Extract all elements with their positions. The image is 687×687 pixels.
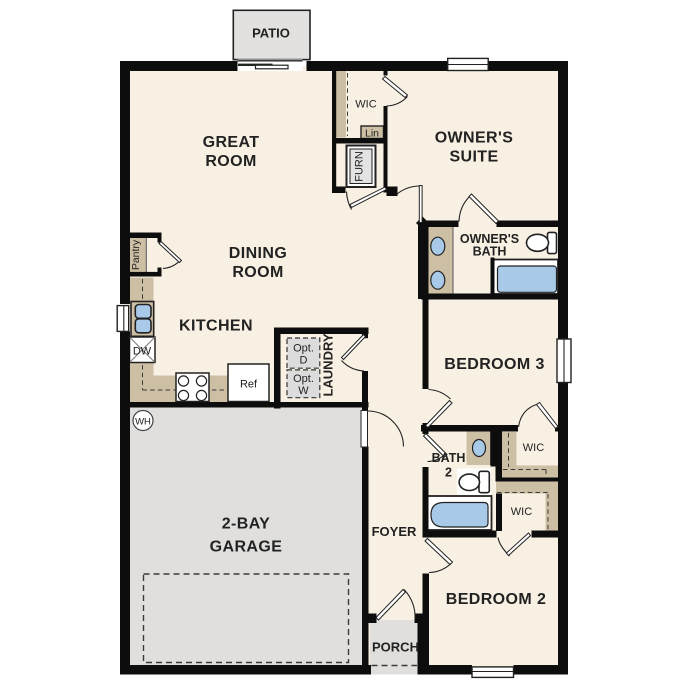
svg-text:2-BAY: 2-BAY	[222, 516, 271, 533]
svg-text:LAUNDRY: LAUNDRY	[321, 333, 336, 396]
svg-text:BEDROOM 3: BEDROOM 3	[444, 356, 545, 373]
svg-text:Lin: Lin	[365, 128, 379, 140]
svg-text:BATH: BATH	[432, 451, 466, 465]
svg-text:OWNER'S: OWNER'S	[435, 130, 514, 147]
svg-text:Opt.: Opt.	[293, 342, 314, 354]
svg-text:2: 2	[445, 466, 452, 480]
svg-text:ROOM: ROOM	[232, 264, 283, 281]
svg-text:DINING: DINING	[229, 245, 287, 262]
svg-text:GREAT: GREAT	[203, 134, 260, 151]
svg-text:GARAGE: GARAGE	[210, 539, 283, 556]
svg-text:PORCH: PORCH	[372, 640, 419, 655]
svg-text:Pantry: Pantry	[130, 239, 142, 270]
svg-text:BEDROOM 2: BEDROOM 2	[446, 591, 547, 608]
svg-text:WIC: WIC	[355, 99, 376, 111]
svg-text:SUITE: SUITE	[449, 149, 498, 166]
svg-text:Opt.: Opt.	[293, 373, 314, 385]
svg-text:D: D	[300, 355, 308, 367]
svg-text:FURN: FURN	[354, 151, 366, 182]
svg-text:ROOM: ROOM	[205, 153, 256, 170]
svg-text:FOYER: FOYER	[372, 524, 417, 539]
svg-text:PATIO: PATIO	[252, 26, 290, 41]
svg-text:DW: DW	[133, 346, 152, 358]
svg-text:W: W	[298, 385, 309, 397]
svg-text:WIC: WIC	[511, 506, 532, 518]
svg-text:BATH: BATH	[473, 245, 507, 259]
svg-text:WIC: WIC	[523, 442, 544, 454]
svg-text:KITCHEN: KITCHEN	[179, 318, 253, 335]
svg-text:WH: WH	[135, 417, 151, 428]
svg-text:Ref: Ref	[240, 379, 258, 391]
